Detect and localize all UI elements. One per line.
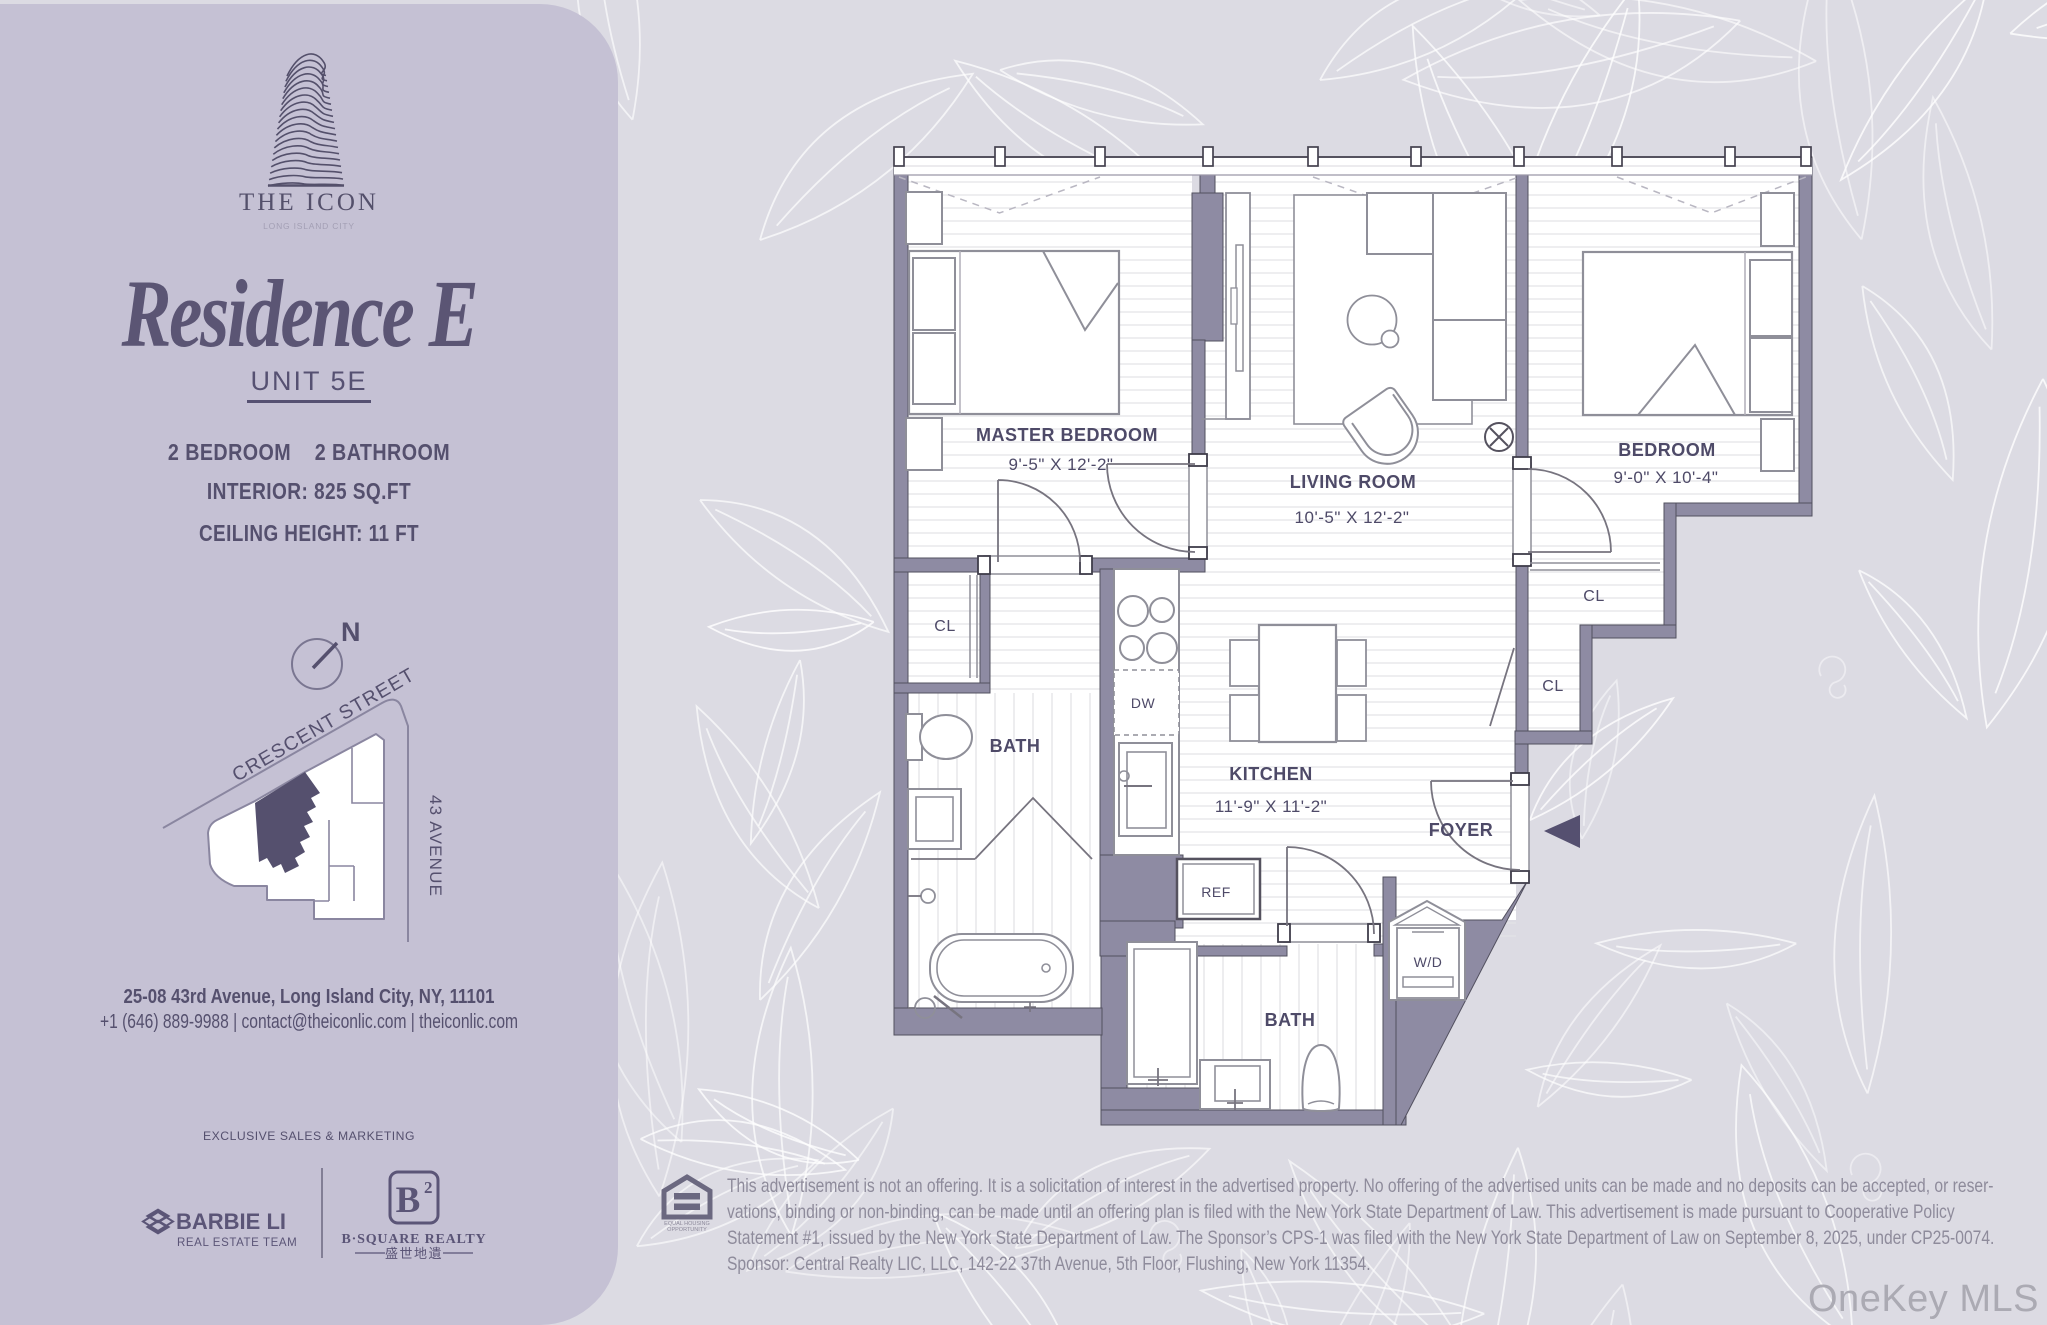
svg-text:BEDROOM: BEDROOM [1618,440,1716,460]
svg-text:11'-9" X 11'-2": 11'-9" X 11'-2" [1215,797,1327,816]
svg-text:REF: REF [1201,884,1231,900]
svg-text:DW: DW [1131,695,1156,711]
svg-text:BATH: BATH [1265,1010,1316,1030]
svg-text:REAL ESTATE TEAM: REAL ESTATE TEAM [177,1237,297,1249]
svg-text:KITCHEN: KITCHEN [1229,764,1313,784]
svg-text:10'-5" X 12'-2": 10'-5" X 12'-2" [1295,508,1410,527]
svg-text:B·SQUARE REALTY: B·SQUARE REALTY [342,1232,487,1247]
svg-text:盛世地遺: 盛世地遺 [385,1246,443,1261]
svg-text:CL: CL [1583,588,1604,605]
svg-text:9'-5" X 12'-2": 9'-5" X 12'-2" [1009,455,1114,474]
svg-text:BATH: BATH [990,736,1041,756]
svg-text:LIVING ROOM: LIVING ROOM [1290,472,1417,492]
svg-text:2: 2 [424,1178,433,1197]
svg-text:MASTER BEDROOM: MASTER BEDROOM [976,425,1158,445]
svg-text:W/D: W/D [1414,954,1443,970]
svg-text:CL: CL [934,618,955,635]
svg-text:B: B [396,1180,421,1221]
svg-text:OPPORTUNITY: OPPORTUNITY [667,1227,707,1232]
svg-text:CL: CL [1542,678,1563,695]
svg-text:FOYER: FOYER [1429,820,1494,840]
svg-text:9'-0" X 10'-4": 9'-0" X 10'-4" [1614,468,1719,487]
svg-text:BARBIE LI: BARBIE LI [176,1209,286,1234]
